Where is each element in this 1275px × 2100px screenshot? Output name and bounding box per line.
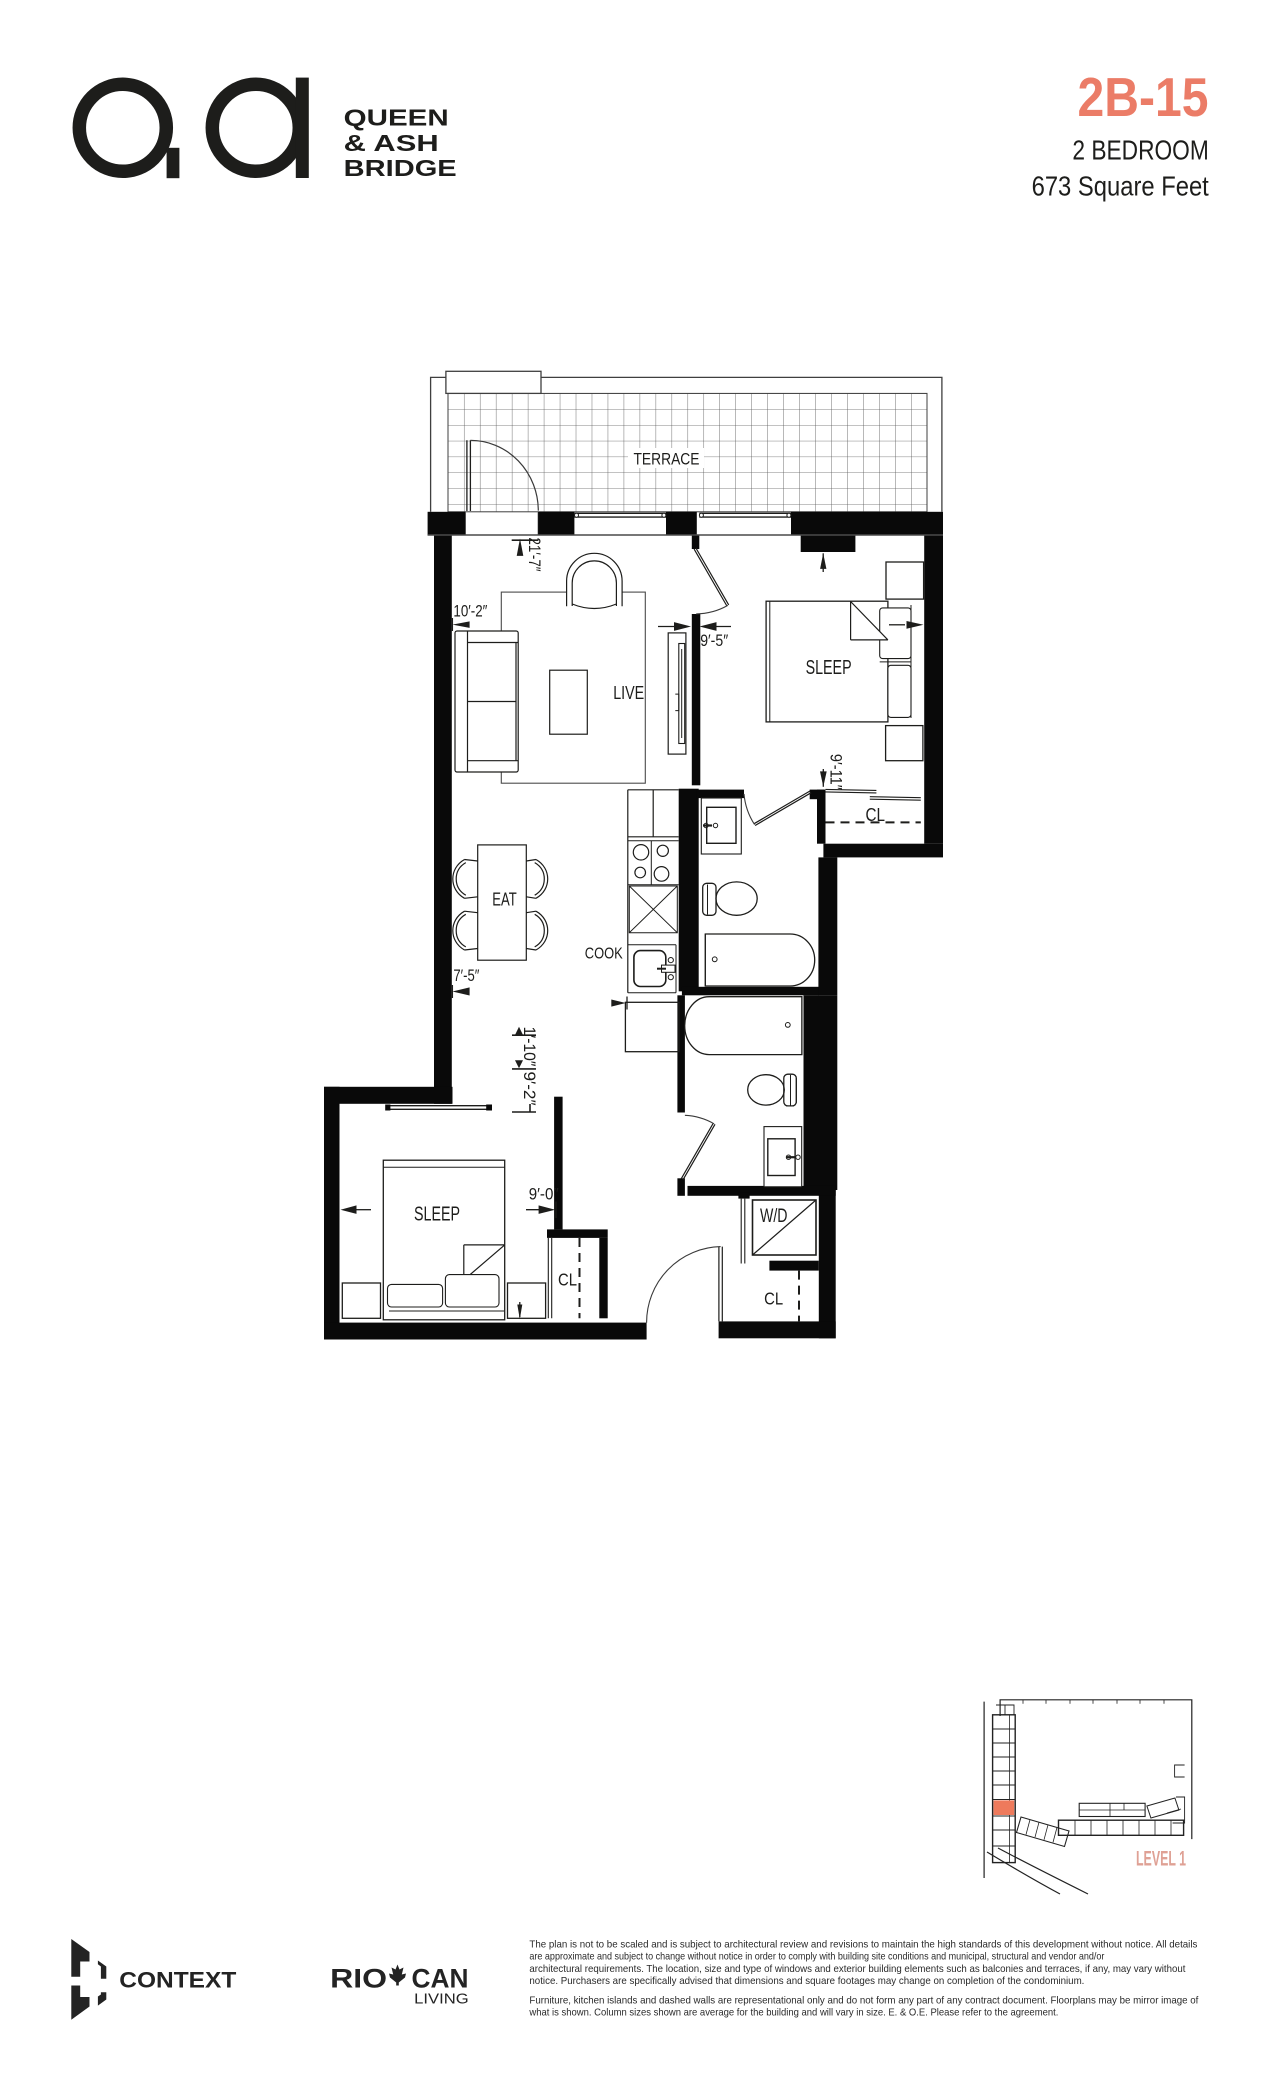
svg-text:architectural requirements. Th: architectural requirements. The location… xyxy=(529,1964,1185,1975)
svg-text:CL: CL xyxy=(558,1270,577,1290)
svg-text:CL: CL xyxy=(764,1289,783,1309)
svg-text:BRIDGE: BRIDGE xyxy=(344,155,457,181)
svg-text:LEVEL 1: LEVEL 1 xyxy=(1136,1848,1186,1871)
svg-text:7′-5″: 7′-5″ xyxy=(453,966,479,985)
svg-text:21′-7″: 21′-7″ xyxy=(525,538,544,572)
svg-text:QUEEN: QUEEN xyxy=(344,104,449,130)
svg-text:what is shown. Column sizes sh: what is shown. Column sizes shown are av… xyxy=(528,2008,1058,2019)
svg-text:2B-15: 2B-15 xyxy=(1078,66,1209,128)
svg-text:SLEEP: SLEEP xyxy=(806,657,852,679)
svg-text:SLEEP: SLEEP xyxy=(414,1204,460,1226)
svg-text:LIVING: LIVING xyxy=(414,1992,469,2008)
svg-text:1′-10″: 1′-10″ xyxy=(520,1027,539,1067)
svg-text:CL: CL xyxy=(866,805,886,825)
svg-text:10′-2″: 10′-2″ xyxy=(453,602,487,621)
svg-text:Furniture, kitchen islands and: Furniture, kitchen islands and dashed wa… xyxy=(529,1996,1198,2007)
svg-text:2 BEDROOM: 2 BEDROOM xyxy=(1072,135,1208,166)
svg-text:RIO: RIO xyxy=(330,1964,387,1994)
svg-text:The plan is not to be scaled a: The plan is not to be scaled and is subj… xyxy=(529,1940,1197,1951)
svg-text:9′-0″: 9′-0″ xyxy=(529,1185,559,1204)
svg-text:CONTEXT: CONTEXT xyxy=(119,1968,237,1993)
svg-text:TERRACE: TERRACE xyxy=(634,451,700,469)
svg-text:673 Square Feet: 673 Square Feet xyxy=(1032,171,1209,202)
svg-text:are approximate and subject to: are approximate and subject to change wi… xyxy=(529,1952,1105,1963)
svg-text:& ASH: & ASH xyxy=(344,130,439,156)
svg-text:9′-2″: 9′-2″ xyxy=(520,1072,539,1106)
svg-text:CAN: CAN xyxy=(412,1964,469,1994)
svg-text:COOK: COOK xyxy=(585,946,624,963)
svg-text:EAT: EAT xyxy=(492,890,517,910)
svg-text:W/D: W/D xyxy=(760,1206,788,1227)
svg-text:9′-11″: 9′-11″ xyxy=(827,754,846,790)
svg-text:LIVE: LIVE xyxy=(613,683,644,703)
svg-text:notice. Purchasers are specifi: notice. Purchasers are specifically advi… xyxy=(529,1976,1084,1987)
svg-text:9′-5″: 9′-5″ xyxy=(700,631,728,650)
